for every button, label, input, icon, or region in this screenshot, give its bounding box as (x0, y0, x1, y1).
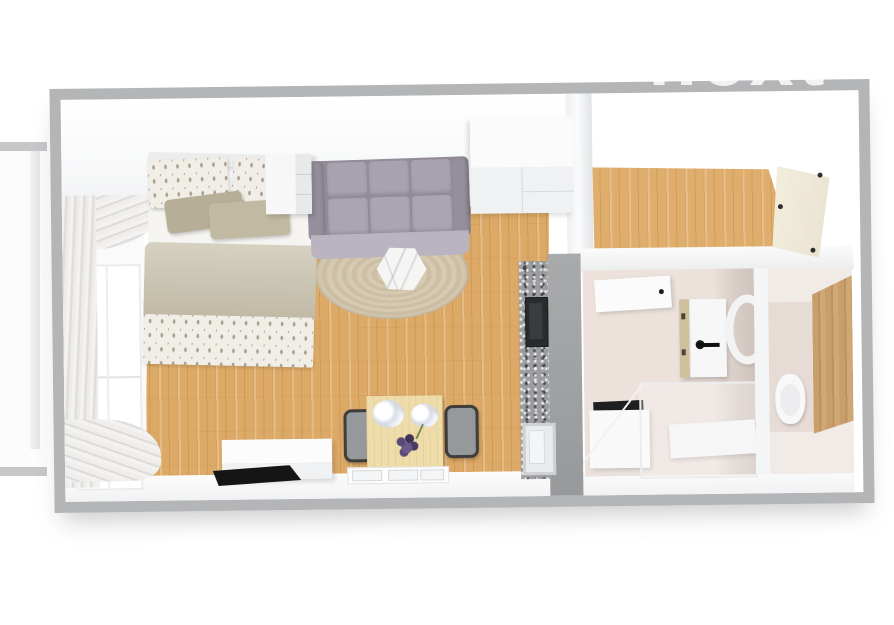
sofa-seat-cushion (370, 196, 411, 233)
boiler-vent (682, 349, 686, 355)
placemat (388, 470, 418, 481)
door-hinge-dot (778, 204, 783, 209)
sofa-back-cushion (326, 162, 367, 197)
sink-basin (529, 430, 545, 464)
table-runner (347, 466, 449, 484)
boiler-handle (698, 343, 720, 347)
door-hinge-dot (818, 173, 823, 178)
nightstand (265, 154, 312, 215)
bed-duvet-patterned-end (143, 314, 314, 368)
balcony-slab (0, 142, 47, 476)
apartment-shell (49, 79, 874, 513)
sofa-seat-cushion (328, 198, 369, 235)
entry-door (771, 166, 830, 259)
shower-panel (669, 419, 757, 458)
sofa-back-cushion (368, 160, 409, 195)
floorplan-render: next (0, 0, 894, 625)
wc-wood-panel-door (812, 275, 854, 433)
bed-duvet (143, 242, 317, 326)
boiler-front-face (689, 299, 727, 377)
placemat (420, 469, 444, 480)
kitchen-sink (523, 423, 557, 475)
dining-table (366, 395, 443, 469)
toilet-seat (780, 384, 800, 416)
wardrobe (470, 117, 574, 214)
balcony-edge (30, 151, 40, 449)
hallway-wood-floor (590, 157, 796, 255)
toilet (775, 374, 806, 424)
wardrobe-top (470, 117, 574, 169)
dining-chair-right (444, 405, 479, 458)
bathroom-open-door-panel (594, 275, 672, 312)
white-flowers-left (372, 400, 404, 428)
wall-bathroom-wc (754, 268, 771, 474)
white-flowers-right (410, 403, 438, 427)
wc-room (768, 267, 855, 474)
wall-boiler-cabinet (679, 299, 726, 378)
nightstand-drawers (295, 154, 312, 214)
sofa-back-cushion (410, 159, 451, 194)
faucet (523, 266, 527, 270)
boiler-vent (681, 313, 685, 319)
purple-bouquet (393, 430, 421, 460)
watermark-logo: next (648, 12, 894, 104)
drawer-seam (296, 194, 312, 195)
sofa (306, 156, 471, 259)
cooktop (525, 297, 549, 347)
shower-enclosure (639, 381, 758, 478)
door-handle-dot (659, 289, 664, 294)
cooktop-surface (529, 303, 542, 339)
sofa-armrest-right (451, 156, 471, 237)
drawer-seam (295, 174, 311, 175)
door-hinge-dot (810, 248, 815, 253)
placemat (352, 470, 382, 481)
desk-top (222, 439, 332, 464)
sofa-seat-cushion (412, 195, 453, 232)
bathroom (583, 268, 757, 476)
